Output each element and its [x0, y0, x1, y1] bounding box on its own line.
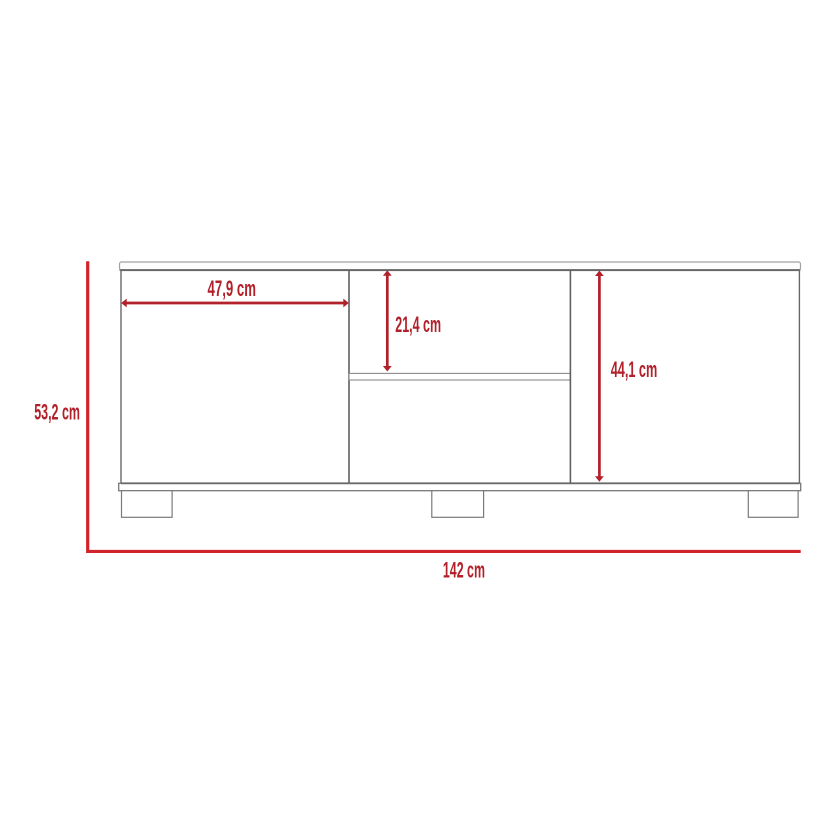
svg-text:142 cm: 142 cm: [443, 557, 485, 582]
svg-text:53,2 cm: 53,2 cm: [34, 400, 80, 425]
svg-text:21,4 cm: 21,4 cm: [395, 312, 441, 337]
svg-text:44,1 cm: 44,1 cm: [611, 357, 658, 382]
svg-text:47,9 cm: 47,9 cm: [208, 276, 257, 301]
